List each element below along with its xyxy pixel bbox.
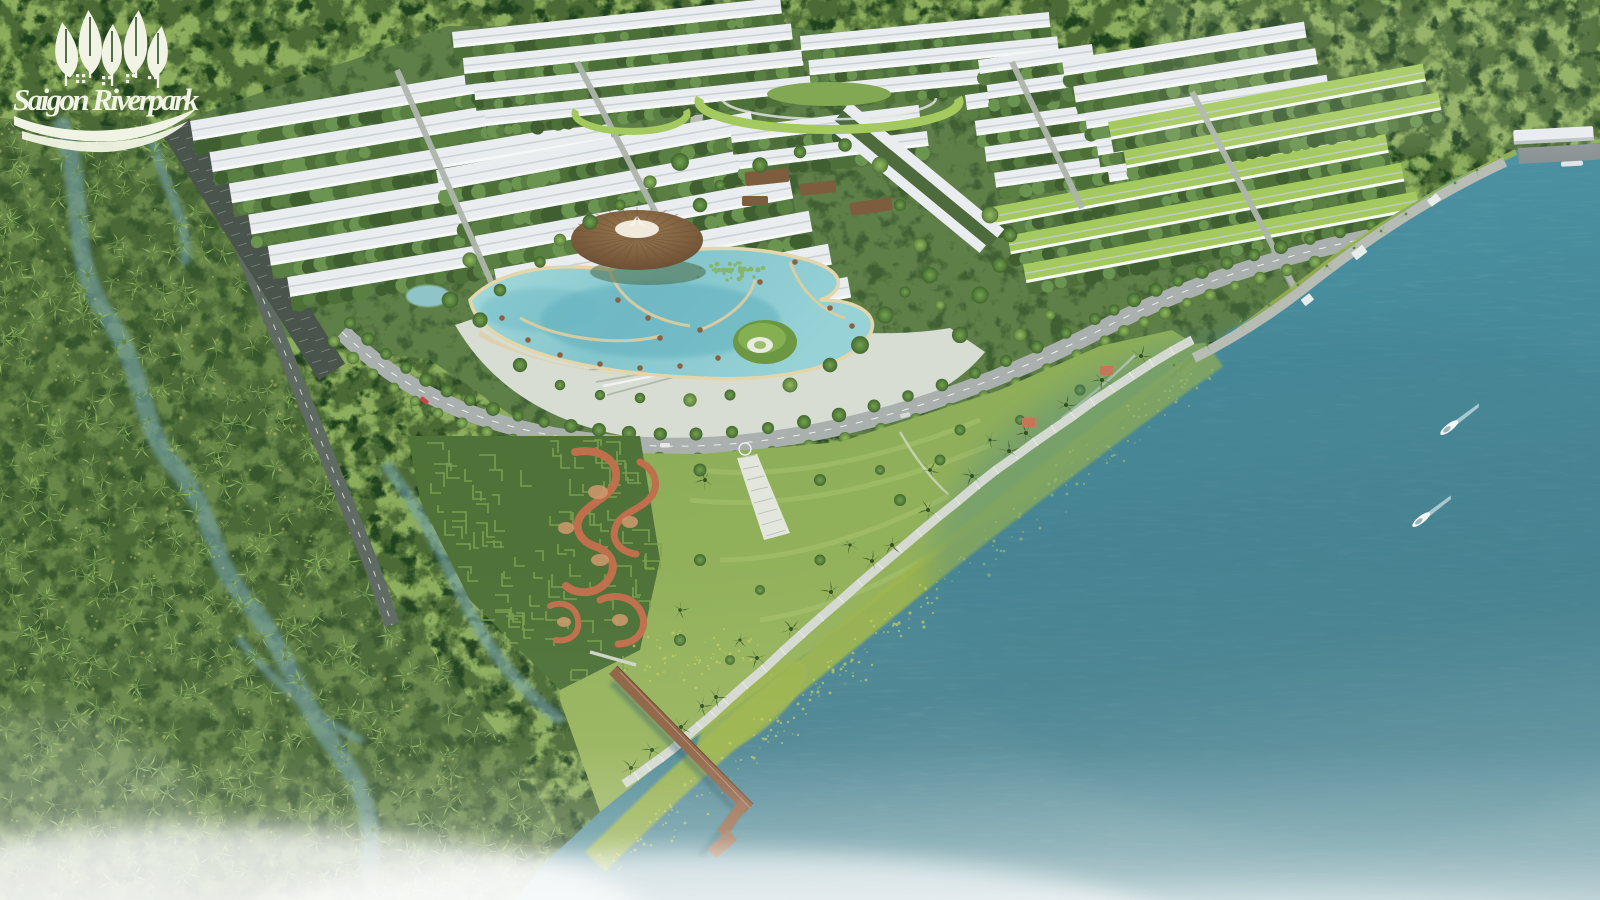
- svg-text:Saigon Riverpark: Saigon Riverpark: [13, 82, 200, 117]
